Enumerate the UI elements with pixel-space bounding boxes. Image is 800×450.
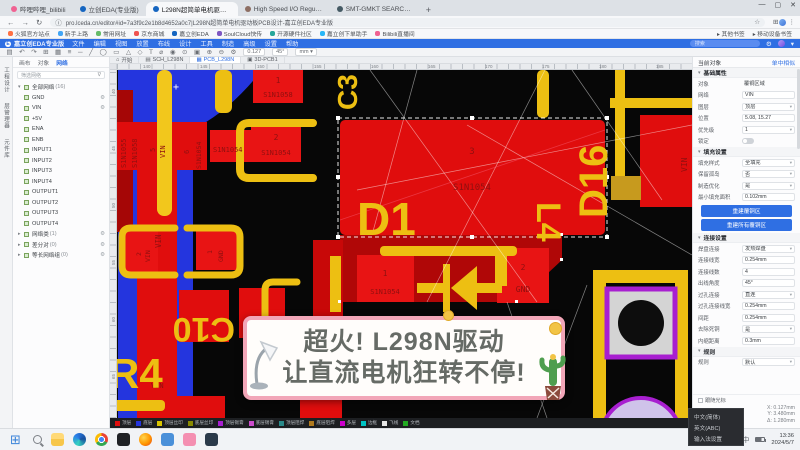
maximize-button[interactable]: ▢	[775, 1, 782, 9]
checkbox-label: 跟随光标	[705, 397, 726, 404]
property-select[interactable]: 否▾	[742, 170, 795, 178]
tree-label: ENB	[32, 137, 44, 143]
tree-label: OUTPUT3	[32, 210, 58, 216]
browser-menu-icon[interactable]: ⋮	[789, 18, 796, 26]
svg-text:5: 5	[149, 148, 157, 152]
property-label: 出线角度	[698, 279, 742, 287]
rail-item-元件库[interactable]: 元件库	[2, 139, 10, 159]
menu-item-布线[interactable]: 布线	[158, 39, 170, 48]
net-icon	[24, 221, 29, 226]
doc-tab-icon: ▣	[247, 57, 252, 63]
layer-color-swatch	[382, 421, 387, 426]
tree-row[interactable]: OUTPUT4	[13, 219, 109, 230]
address-bar: ← → ↻ ⓘ pro.lceda.cn/editor#id=7a3f9c2e1…	[0, 16, 800, 29]
property-label: 位置	[698, 114, 742, 122]
redo-icon[interactable]: ↷	[31, 48, 36, 56]
doc-tab[interactable]: ▤SCH_L298N	[139, 57, 190, 63]
svg-text:S1N1055: S1N1055	[120, 138, 128, 168]
reload-icon[interactable]: ↻	[36, 18, 42, 27]
svg-text:VIN: VIN	[154, 234, 163, 248]
bookmarks-folder[interactable]: ▸ 移动设备书签	[753, 29, 792, 38]
doc-tab-icon: ▤	[145, 57, 150, 63]
rail-item-层管理器[interactable]: 层管理器	[2, 103, 10, 129]
bookmark-item[interactable]: 嘉立创下单助手	[320, 29, 368, 38]
settings-icon[interactable]: ⚙	[231, 48, 237, 56]
menu-item-设置[interactable]: 设置	[265, 39, 277, 48]
url-text: pro.lceda.cn/editor#id=7a3f9c2e1b8d4652a…	[66, 18, 750, 27]
tree-label: 全部网络	[32, 83, 54, 91]
layer-color-swatch	[218, 421, 223, 426]
eda-search-input[interactable]: 搜索	[690, 40, 760, 47]
tree-gear-icon[interactable]: ⚙	[100, 231, 105, 237]
deco-dot-icon	[549, 322, 562, 335]
net-filter-placeholder: 筛选网络	[21, 72, 41, 79]
filter-funnel-icon[interactable]: ∇	[98, 72, 101, 78]
silk-frame-left[interactable]	[593, 270, 606, 418]
text-tool-icon[interactable]: T	[149, 49, 153, 56]
new-tab-button[interactable]: +	[426, 5, 431, 15]
property-label: 最小填充面积	[698, 193, 742, 201]
property-value: 覆铜区域	[742, 80, 795, 88]
menu-item-制造[interactable]: 制造	[222, 39, 234, 48]
tab-favicon	[337, 6, 343, 12]
ime-popup: 中文(简体)英文(ABC)输入法设置	[688, 408, 744, 446]
th-pad-round[interactable]	[601, 398, 681, 418]
property-row: 出线角度45°	[693, 278, 800, 290]
bookmark-favicon	[320, 31, 325, 36]
line-tool-icon[interactable]: ─	[78, 49, 83, 56]
keepout-icon[interactable]: ▣	[194, 48, 200, 56]
property-row: 最小填充面积0.102mm	[693, 192, 800, 204]
layer-chip-label: 底层锡膏	[256, 420, 274, 426]
menu-item-工具[interactable]: 工具	[200, 39, 212, 48]
layer-chip[interactable]: 顶层丝印	[157, 420, 182, 426]
bookmarks-bar: 火狐官方站点新手上路常用网址京东商城嘉立创EDASoulCloud快传开源硬件社…	[0, 29, 800, 39]
property-select[interactable]: 直连▾	[742, 291, 795, 299]
diode-lead-left[interactable]	[417, 283, 443, 293]
bookmark-item[interactable]: Bilibili直播间	[375, 29, 414, 38]
property-row: 内缩距离0.3mm	[693, 335, 800, 347]
new-file-icon[interactable]: ▤	[7, 48, 13, 56]
pad-vin-bl[interactable]	[125, 227, 158, 272]
drill-hole	[618, 300, 664, 346]
bookmark-item[interactable]: 常用网址	[96, 29, 126, 38]
property-select[interactable]: 是▾	[742, 325, 795, 333]
taskbar-icon-files[interactable]	[161, 433, 174, 446]
menu-item-放置[interactable]: 放置	[136, 39, 148, 48]
origin-marker: +	[173, 82, 179, 93]
taskbar-icon-folder[interactable]	[51, 433, 64, 446]
copper-pour-icon[interactable]: ⊙	[182, 48, 187, 56]
property-input[interactable]: 0.102mm	[742, 193, 795, 201]
taskbar-icon-code[interactable]	[205, 433, 218, 446]
bookmark-label: 常用网址	[103, 29, 126, 38]
property-select[interactable]: 发热焊盘▾	[742, 245, 795, 253]
via-tool-icon[interactable]: ⌀	[159, 48, 163, 56]
svg-text:L4: L4	[529, 202, 567, 242]
silk-bar-mid[interactable]	[330, 256, 341, 312]
align-icon[interactable]: ≡	[68, 49, 72, 56]
taskbar-search-icon[interactable]	[33, 435, 42, 444]
taskbar-icon-chrome[interactable]	[95, 433, 108, 446]
property-select[interactable]: 全填充▾	[742, 159, 795, 167]
bookmark-favicon	[172, 31, 177, 36]
tree-row[interactable]: INPUT1	[13, 145, 109, 156]
property-label: 过孔连接	[698, 291, 742, 299]
layer-color-swatch	[403, 421, 408, 426]
circle-tool-icon[interactable]: ◯	[100, 48, 107, 56]
taskbar-icon-black-app[interactable]	[117, 433, 130, 446]
properties-header: 当前对象	[698, 58, 721, 67]
layer-chip-label: 底层丝印	[195, 420, 213, 426]
tree-gear-icon[interactable]: ⚙	[100, 242, 105, 248]
eda-toolbar: ▤↶↷⊞▦≡─╱◯▭△◇T⌀◉⊙▣⊕⊖⚙0.12745°mm ▾	[0, 48, 800, 57]
bookmark-favicon	[270, 31, 275, 36]
ruler-tick-label: 170	[485, 64, 493, 69]
back-icon[interactable]: ←	[7, 18, 15, 27]
tree-row[interactable]: ENB	[13, 135, 109, 146]
property-row: 规则默认▾	[693, 357, 800, 369]
diamond-tool-icon[interactable]: ◇	[137, 48, 142, 56]
layer-chip[interactable]: 边框	[361, 420, 377, 426]
property-input[interactable]: 0.3mm	[742, 337, 795, 345]
tree-row[interactable]: OUTPUT1	[13, 187, 109, 198]
toolbar-dropdown[interactable]: 0.127	[243, 48, 265, 56]
property-row: 间距0.254mm	[693, 312, 800, 324]
doc-tab[interactable]: ▦PCB_L298N	[190, 57, 241, 63]
video-caption-card: 超火! L298N驱动 让直流电机狂转不停!	[243, 316, 565, 400]
pad-bottom-a[interactable]	[175, 396, 225, 418]
bookmark-favicon	[375, 31, 380, 36]
rect-tool-icon[interactable]: ▭	[113, 48, 119, 56]
layer-color-swatch	[340, 421, 345, 426]
section-caret-icon[interactable]: ▾	[698, 149, 701, 155]
caption-line1: 超火! L298N驱动	[303, 327, 504, 358]
property-row: 去除死铜是▾	[693, 324, 800, 336]
pad-tool-icon[interactable]: ◉	[170, 48, 176, 56]
tray-time: 13:36	[771, 433, 794, 440]
layer-chip-label: 顶层	[122, 420, 131, 426]
tree-row[interactable]: ▾全部网络(16)	[13, 82, 109, 93]
left-panel-tab-网络[interactable]: 网络	[56, 58, 68, 67]
forward-icon[interactable]: →	[22, 18, 30, 27]
tree-row[interactable]: INPUT4	[13, 177, 109, 188]
silk-line-h[interactable]	[610, 98, 692, 108]
eda-brand-label: 嘉立创EDA专业版	[14, 39, 64, 48]
tree-label: INPUT4	[32, 179, 52, 185]
layer-chip-label: 顶层丝印	[164, 420, 182, 426]
doc-tab-label: 3D-PCB1	[254, 57, 277, 63]
tree-row[interactable]: ENA	[13, 124, 109, 135]
bookmark-item[interactable]: SoulCloud快传	[217, 29, 262, 38]
section-title[interactable]: ▾规则	[693, 347, 800, 357]
track-tool-icon[interactable]: ╱	[89, 48, 93, 56]
property-input[interactable]: 45°	[742, 279, 795, 287]
checkbox-icon[interactable]	[698, 398, 703, 403]
browser-tab[interactable]: 立创EDA(专业版)	[73, 2, 146, 16]
tree-gear-icon[interactable]: ⚙	[100, 95, 105, 101]
property-row: 过孔连接线宽0.254mm	[693, 301, 800, 313]
follow-cursor-checkbox[interactable]: 跟随光标	[698, 397, 795, 404]
browser-tab[interactable]: 哔哩哔哩_bilibili	[4, 2, 73, 16]
menu-item-设计[interactable]: 设计	[179, 39, 191, 48]
rebuild-button[interactable]: 重建所有覆铜区	[701, 219, 792, 231]
bookmark-favicon	[134, 31, 139, 36]
taskbar-icon-edge[interactable]	[73, 433, 86, 446]
menu-item-视图[interactable]: 视图	[115, 39, 127, 48]
property-row: 连接线数4	[693, 266, 800, 278]
bookmark-item[interactable]: 嘉立创EDA	[172, 29, 208, 38]
document-tabs: ⌂开始▤SCH_L298N▦PCB_L298N▣3D-PCB1	[110, 57, 692, 64]
doc-tab[interactable]: ⌂开始	[110, 57, 139, 63]
bookmark-favicon	[96, 31, 101, 36]
net-icon	[24, 158, 29, 163]
tree-row[interactable]: INPUT3	[13, 166, 109, 177]
property-label: 去除死铜	[698, 325, 742, 333]
close-button[interactable]: ✕	[790, 1, 796, 9]
tree-label: VIN	[32, 105, 41, 111]
tree-row[interactable]: VIN⚙	[13, 103, 109, 114]
property-select[interactable]: 默认▾	[742, 358, 795, 366]
svg-text:R4: R4	[117, 350, 163, 397]
clock[interactable]: 13:36 2024/5/7	[771, 433, 794, 447]
dropdown-caret-icon: ▾	[790, 104, 792, 110]
toolbar-dropdown[interactable]: 45°	[272, 48, 288, 56]
browser-tab[interactable]: L298N超简单电机驱动板PCB设计	[146, 2, 238, 16]
ruler-tick-label: 40	[111, 89, 116, 94]
tree-row[interactable]: ▸网络类(1)⚙	[13, 229, 109, 240]
zoom-in-icon[interactable]: ⊕	[207, 48, 212, 56]
net-filter-input[interactable]: 筛选网络 ∇	[17, 71, 105, 79]
property-select[interactable]: 1▾	[742, 126, 795, 134]
menu-item-高级[interactable]: 高级	[243, 39, 255, 48]
property-input[interactable]: 4	[742, 268, 795, 276]
layer-chip[interactable]: 文档	[403, 420, 419, 426]
section-caret-icon[interactable]: ▾	[698, 70, 701, 76]
section-caret-icon[interactable]: ▾	[698, 348, 701, 354]
property-label: 连接线宽	[698, 256, 742, 264]
tree-row[interactable]: OUTPUT3	[13, 208, 109, 219]
layer-grid-icon[interactable]: ▦	[55, 48, 61, 56]
property-input[interactable]: 0.254mm	[742, 256, 795, 264]
tree-row[interactable]: OUTPUT2	[13, 198, 109, 209]
zoom-out-icon[interactable]: ⊖	[219, 48, 224, 56]
ruler-tick-label: 50	[111, 203, 116, 208]
tab-favicon	[80, 6, 86, 12]
eda-brand: E 嘉立创EDA专业版	[5, 39, 64, 48]
layer-chip-label: 多层	[347, 420, 356, 426]
bookmark-label: 嘉立创EDA	[179, 29, 208, 38]
doc-tab[interactable]: ▣3D-PCB1	[241, 57, 284, 63]
layer-chip[interactable]: 顶层锡膏	[218, 420, 243, 426]
eda-caret-icon[interactable]: ▾	[791, 40, 794, 48]
silk-bar-top2[interactable]	[537, 70, 549, 118]
url-field[interactable]: ⓘ pro.lceda.cn/editor#id=7a3f9c2e1b8d465…	[50, 18, 765, 27]
menu-item-编辑[interactable]: 编辑	[94, 39, 106, 48]
rebuild-button[interactable]: 重建覆铜区	[701, 205, 792, 217]
layer-color-swatch	[249, 421, 254, 426]
bookmark-label: SoulCloud快传	[224, 29, 262, 38]
lock-toggle[interactable]	[742, 138, 754, 144]
doc-tab-icon: ⌂	[116, 57, 119, 63]
toolbar-dropdown[interactable]: mm ▾	[295, 48, 316, 56]
tree-row[interactable]: +5V	[13, 114, 109, 125]
tree-label: OUTPUT1	[32, 189, 58, 195]
property-row: 填充样式全填充▾	[693, 157, 800, 169]
browser-profile-avatar[interactable]	[779, 19, 786, 26]
tree-label: INPUT2	[32, 158, 52, 164]
svg-text:VIN: VIN	[144, 250, 152, 262]
grid-icon[interactable]: ⊞	[43, 48, 48, 56]
property-input[interactable]: 0.254mm	[742, 302, 795, 310]
tree-count: (1)	[50, 231, 57, 237]
taskbar-icon-firefox[interactable]	[139, 433, 152, 446]
section-caret-icon[interactable]: ▾	[698, 235, 701, 241]
layer-chip[interactable]: 飞线	[382, 420, 398, 426]
menu-item-帮助[interactable]: 帮助	[286, 39, 298, 48]
net-icon	[24, 95, 29, 100]
property-row: 制造优化是▾	[693, 180, 800, 192]
layer-chip[interactable]: 顶层阻焊	[279, 420, 304, 426]
doc-tab-label: SCH_L298N	[153, 57, 184, 63]
property-row: 网络VIN	[693, 90, 800, 102]
property-label: 过孔连接线宽	[698, 302, 742, 310]
layer-chip[interactable]: 底层	[136, 420, 152, 426]
section-title[interactable]: ▾填充设置	[693, 147, 800, 157]
svg-text:1: 1	[276, 76, 281, 85]
browser-tab[interactable]: High Speed I/O Regulators	[238, 2, 330, 16]
net-icon	[24, 106, 29, 111]
ruler-tick-label: 175	[542, 64, 550, 69]
undo-icon[interactable]: ↶	[19, 48, 24, 56]
silk-bar-tall[interactable]	[157, 70, 172, 216]
ruler-tick-label: 145	[200, 64, 208, 69]
tab-favicon	[245, 6, 251, 12]
tree-row[interactable]: ▸差分对(0)⚙	[13, 240, 109, 251]
layer-chip-label: 顶层锡膏	[225, 420, 243, 426]
minimize-button[interactable]: —	[759, 1, 766, 9]
svg-text:VIN: VIN	[680, 157, 689, 172]
polygon-tool-icon[interactable]: △	[126, 48, 131, 56]
bookmark-item[interactable]: 新手上路	[58, 29, 88, 38]
dropdown-caret-icon: ▾	[790, 326, 792, 332]
tree-row[interactable]: GND⚙	[13, 93, 109, 104]
start-button[interactable]: ⊞	[9, 433, 22, 446]
svg-text:S1N1054: S1N1054	[195, 142, 203, 169]
taskbar-icon-bilibili[interactable]	[183, 433, 196, 446]
section-title[interactable]: ▾连接设置	[693, 233, 800, 243]
property-row: 对象覆铜区域	[693, 78, 800, 90]
bookmark-item[interactable]: 开源硬件社区	[270, 29, 312, 38]
silk-bar-top1[interactable]	[215, 70, 232, 113]
tree-row[interactable]: INPUT2	[13, 156, 109, 167]
property-input[interactable]: 5.08, 15.27	[742, 114, 795, 122]
layer-color-swatch	[115, 421, 120, 426]
menu-item-文件[interactable]: 文件	[72, 39, 84, 48]
rail-item-工程设计[interactable]: 工程设计	[2, 67, 10, 93]
eda-user-avatar[interactable]	[778, 40, 785, 47]
layer-chip[interactable]: 底层锡膏	[249, 420, 274, 426]
bookmark-label: 火狐官方站点	[15, 29, 50, 38]
property-row: 连接线宽0.254mm	[693, 255, 800, 267]
left-panel-tab-画布[interactable]: 画布	[19, 58, 31, 67]
layer-chip[interactable]: 顶层	[115, 420, 131, 426]
caption-line2: 让直流电机狂转不停!	[282, 358, 525, 389]
bookmarks-folder[interactable]: ▸ 其他书签	[717, 29, 745, 38]
extensions-icon[interactable]: ⊞	[773, 18, 778, 26]
svg-text:S1N1054: S1N1054	[370, 288, 400, 296]
property-label: 对象	[698, 80, 742, 88]
tree-label: GND	[32, 95, 44, 101]
layer-chip[interactable]: 多层	[340, 420, 356, 426]
silk-line-v[interactable]	[615, 70, 625, 188]
layer-bar: 顶层底层顶层丝印底层丝印顶层锡膏底层锡膏顶层阻焊底层阻焊多层边框飞线文档	[110, 418, 692, 428]
dropdown-caret-icon: ▾	[790, 127, 792, 133]
tree-row[interactable]: ▸等长网络组(0)⚙	[13, 250, 109, 261]
property-select[interactable]: 顶层▾	[742, 103, 795, 111]
ime-option[interactable]: 英文(ABC)	[689, 422, 743, 433]
net-icon	[24, 137, 29, 142]
tree-gear-icon[interactable]: ⚙	[100, 105, 105, 111]
layer-chip-label: 顶层阻焊	[286, 420, 304, 426]
layer-color-swatch	[309, 421, 314, 426]
site-info-icon[interactable]: ⓘ	[55, 17, 62, 27]
doc-tab-icon: ▦	[196, 57, 201, 63]
net-icon	[24, 179, 29, 184]
ime-option[interactable]: 输入法设置	[689, 433, 743, 444]
left-panel-tab-对象[interactable]: 对象	[38, 58, 50, 67]
cactus-icon	[537, 350, 567, 402]
browser-tabs: 哔哩哔哩_bilibili立创EDA(专业版)L298N超简单电机驱动板PCB设…	[4, 2, 422, 16]
svg-text:GND: GND	[217, 250, 225, 262]
layer-color-swatch	[157, 421, 162, 426]
svg-text:VIN: VIN	[159, 145, 167, 158]
bookmark-item[interactable]: 京东商城	[134, 29, 164, 38]
layer-chip[interactable]: 底层丝印	[188, 420, 213, 426]
bookmarks-right: ▸ 其他书签▸ 移动设备书签	[717, 29, 792, 38]
ruler-tick-label: 45	[111, 146, 116, 151]
property-input[interactable]: VIN	[742, 91, 795, 99]
layer-chip[interactable]: 底层阻焊	[309, 420, 334, 426]
silk-frame-top[interactable]	[593, 270, 688, 283]
tab-title: SMT-GMKT SEARCH SITE CN v2	[346, 6, 415, 13]
ruler-tick-label: 185	[656, 64, 664, 69]
tree-gear-icon[interactable]: ⚙	[100, 252, 105, 258]
section-title[interactable]: ▾基础属性	[693, 68, 800, 78]
diode-lead-right[interactable]	[477, 283, 502, 293]
bookmark-item[interactable]: 火狐官方站点	[8, 29, 50, 38]
tree-label: +5V	[32, 116, 42, 122]
ruler-tick-label: 150	[257, 64, 265, 69]
browser-tab-strip: 哔哩哔哩_bilibili立创EDA(专业版)L298N超简单电机驱动板PCB设…	[0, 0, 800, 16]
net-icon	[24, 148, 29, 153]
silk-bar-bottom[interactable]	[117, 400, 165, 411]
property-input[interactable]: 0.254mm	[742, 314, 795, 322]
dropdown-caret-icon: ▾	[790, 183, 792, 189]
property-select[interactable]: 是▾	[742, 182, 795, 190]
eda-menu-items: 文件编辑视图放置布线设计工具制造高级设置帮助	[72, 39, 298, 48]
find-similar-link[interactable]: 单中相似	[772, 58, 795, 67]
ime-option[interactable]: 中文(简体)	[689, 411, 743, 422]
bookmark-star-icon[interactable]: ☆	[754, 18, 760, 26]
pad-gnd-bl[interactable]	[196, 227, 238, 270]
tree-label: OUTPUT2	[32, 200, 58, 206]
diode-bar[interactable]	[443, 264, 450, 312]
svg-text:1: 1	[206, 250, 214, 254]
eda-settings-icon[interactable]: ⚙	[766, 40, 772, 48]
browser-tab[interactable]: SMT-GMKT SEARCH SITE CN v2	[330, 2, 422, 16]
ruler-tick-label: 60	[111, 317, 116, 322]
